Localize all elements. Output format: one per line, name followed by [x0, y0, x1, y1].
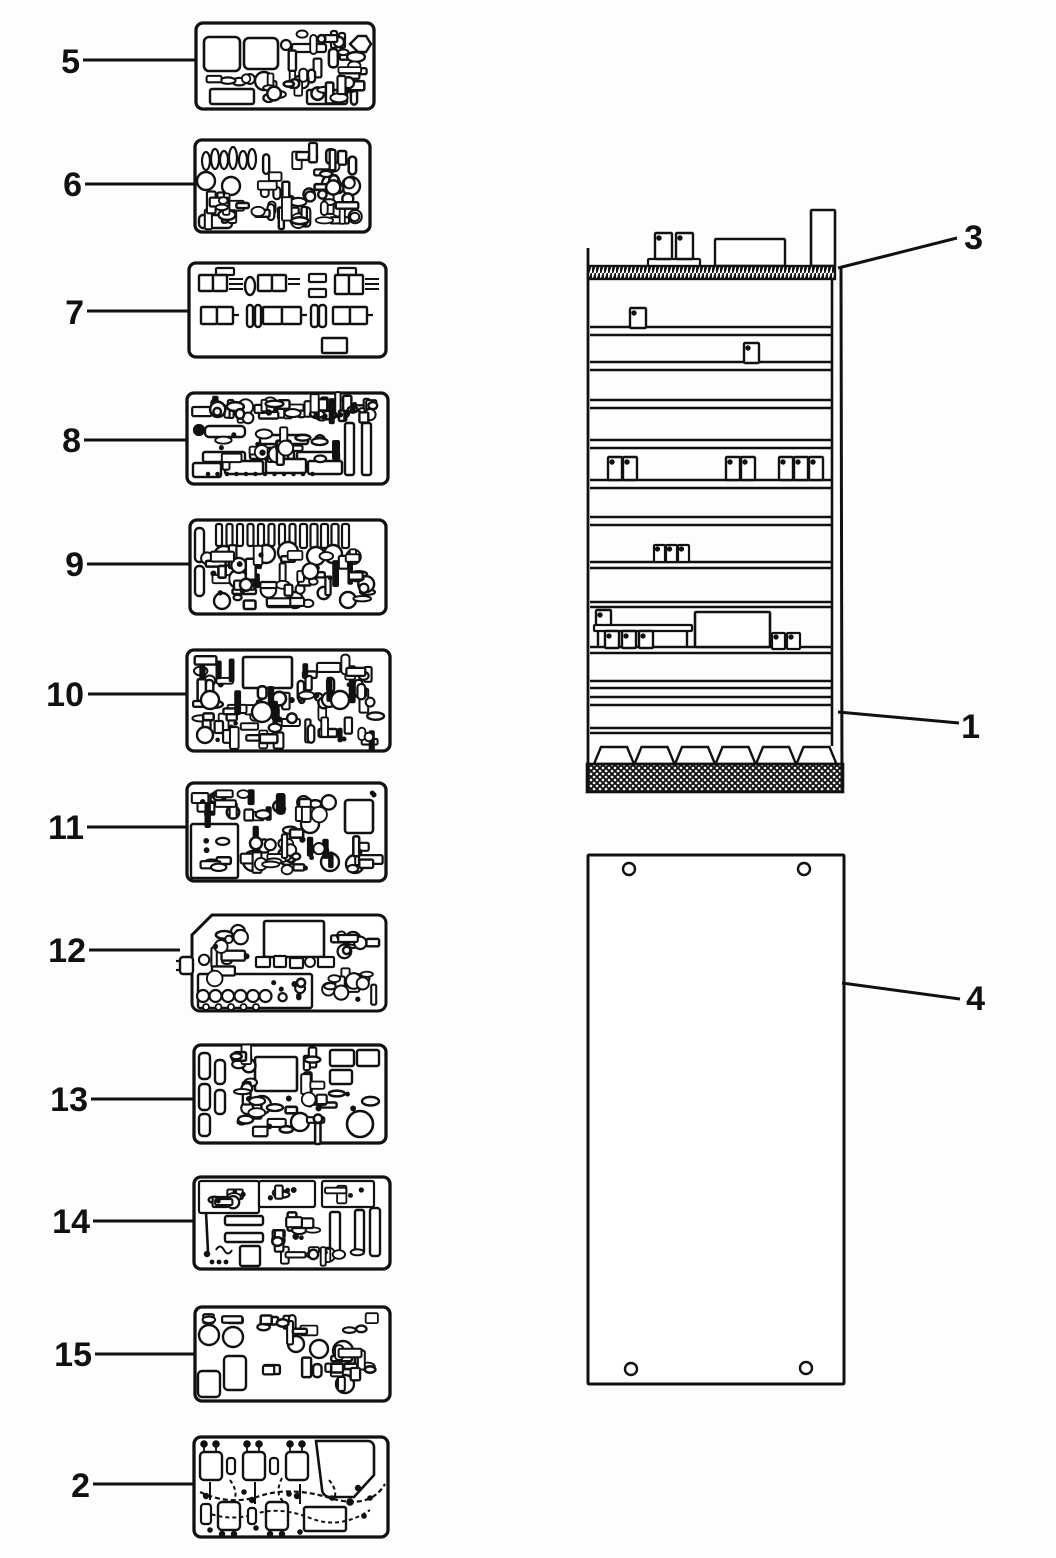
svg-text:8: 8 [62, 422, 81, 460]
svg-text:10: 10 [46, 676, 84, 714]
svg-text:9: 9 [65, 546, 84, 584]
svg-text:1: 1 [961, 708, 980, 746]
svg-text:15: 15 [54, 1336, 92, 1374]
svg-text:4: 4 [966, 980, 985, 1018]
svg-text:6: 6 [63, 166, 82, 204]
svg-text:14: 14 [52, 1203, 90, 1241]
svg-text:3: 3 [964, 219, 983, 257]
svg-text:11: 11 [48, 809, 84, 847]
svg-text:7: 7 [65, 294, 84, 332]
svg-text:5: 5 [61, 43, 80, 81]
svg-text:12: 12 [48, 932, 86, 970]
svg-text:13: 13 [50, 1081, 88, 1119]
svg-text:2: 2 [71, 1467, 90, 1505]
